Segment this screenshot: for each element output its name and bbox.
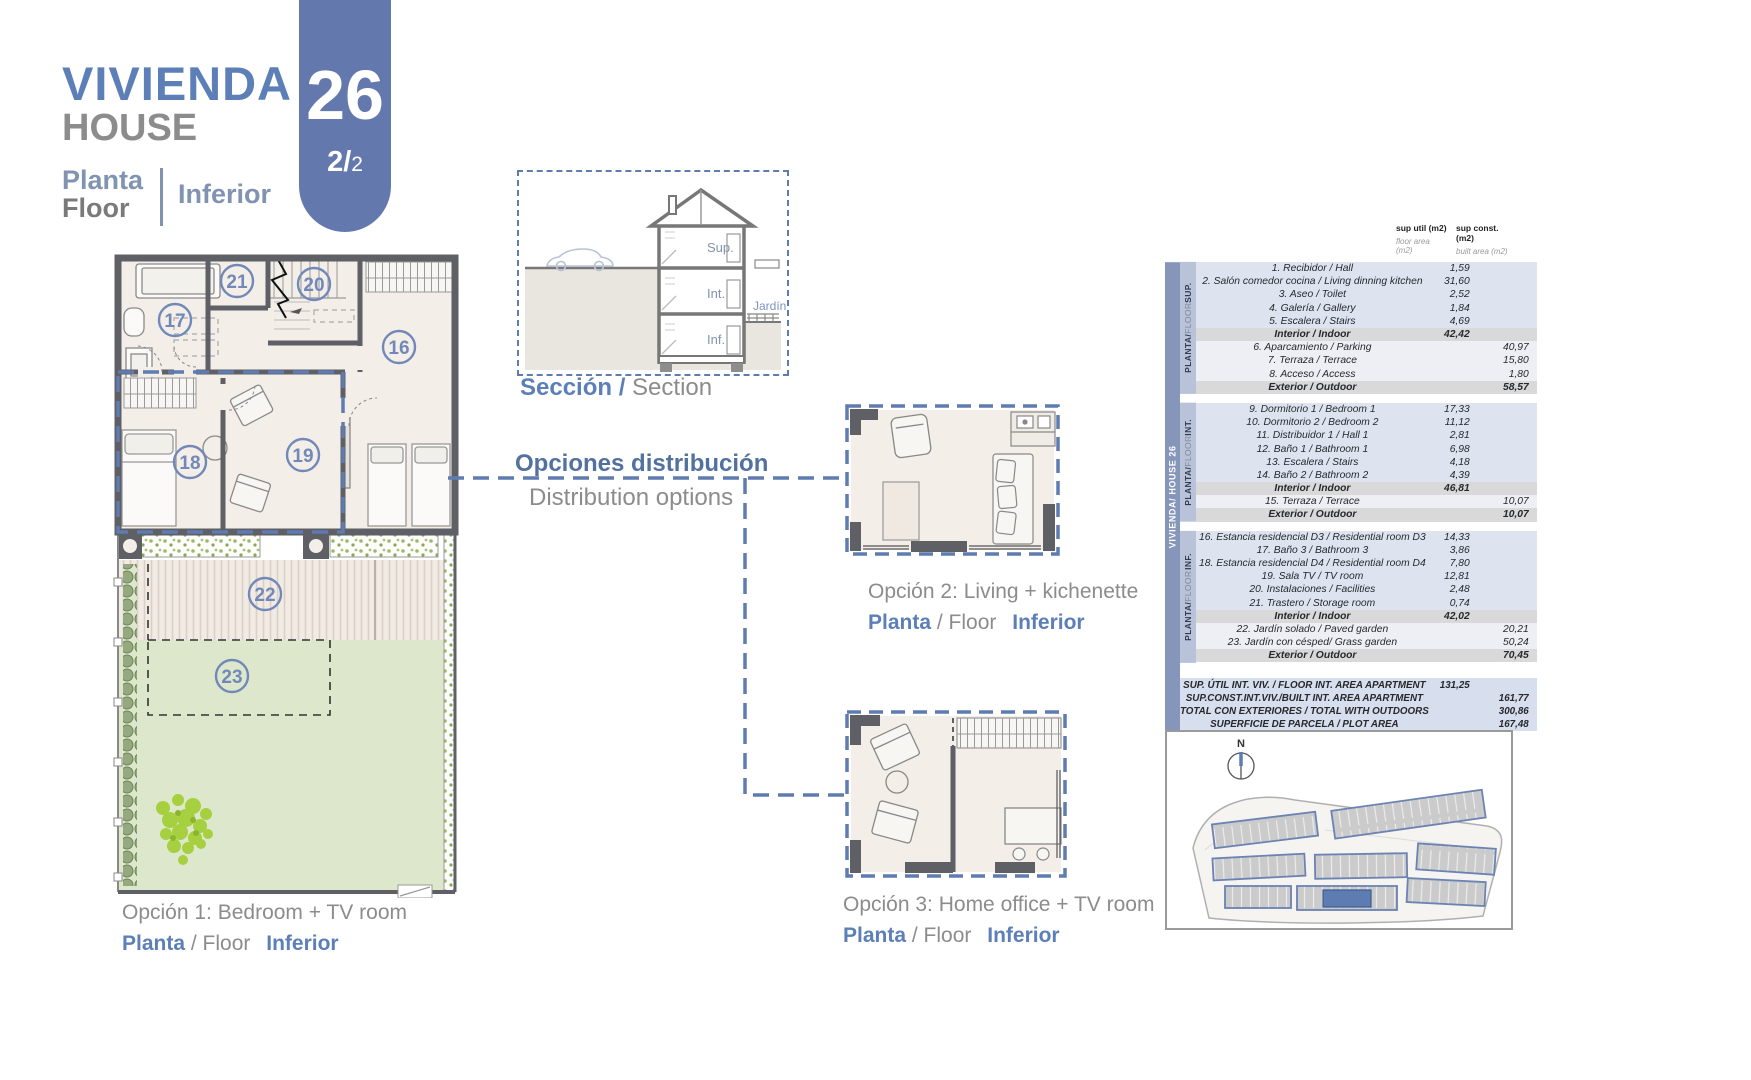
section-rows: 1. Recibidor / Hall1,592. Salón comedor …: [1196, 262, 1537, 394]
row-label: 15. Terraza / Terrace: [1196, 496, 1429, 507]
planter: [140, 535, 260, 557]
svg-text:17: 17: [164, 311, 185, 332]
row-label: 18. Estancia residencial D4 / Residentia…: [1196, 558, 1429, 569]
closet: [366, 262, 452, 292]
col-header-built-area: sup const. (m2) built area (m2): [1456, 224, 1514, 256]
table-row: 3. Aseo / Toilet2,52: [1196, 288, 1537, 301]
table-row: 14. Baño 2 / Bathroom 24,39: [1196, 469, 1537, 482]
row-label: 17. Baño 3 / Bathroom 3: [1196, 545, 1429, 556]
ground-left: [525, 268, 659, 370]
table-row: 13. Escalera / Stairs4,18: [1196, 456, 1537, 469]
row-floor-area: 42,02: [1429, 611, 1475, 622]
row-label: Interior / Indoor: [1196, 611, 1429, 622]
table-summary: SUP. ÚTIL INT. VIV. / FLOOR INT. AREA AP…: [1180, 678, 1537, 731]
table-section: PLANTA/FLOOR INF.16. Estancia residencia…: [1180, 531, 1537, 663]
row-floor-area: 31,60: [1429, 276, 1475, 287]
table-row: 15. Terraza / Terrace10,07: [1196, 495, 1537, 508]
col-header-floor-area: sup util (m2) floor area (m2): [1396, 224, 1448, 255]
planter: [330, 535, 438, 557]
closet: [124, 378, 196, 408]
row-floor-area: 4,39: [1429, 470, 1475, 481]
table-sections: PLANTA/FLOOR SUP.1. Recibidor / Hall1,59…: [1180, 262, 1537, 671]
row-built-area: 40,97: [1475, 342, 1537, 353]
table-row: 10. Dormitorio 2 / Bedroom 211,12: [1196, 416, 1537, 429]
table-row: 7. Terraza / Terrace15,80: [1196, 354, 1537, 367]
label-sup: Sup.: [707, 240, 734, 255]
label-inf: Inf.: [707, 332, 725, 347]
table-row: 23. Jardín con césped/ Grass garden50,24: [1196, 636, 1537, 649]
row-floor-area: 2,81: [1429, 430, 1475, 441]
section-rows: 9. Dormitorio 1 / Bedroom 117,3310. Dorm…: [1196, 403, 1537, 522]
row-floor-area: 131,25: [1429, 680, 1475, 691]
row-label: SUPERFICIE DE PARCELA / PLOT AREA: [1180, 719, 1429, 730]
bed: [122, 430, 176, 526]
section-caption: Sección / Section: [520, 374, 712, 402]
row-label: Interior / Indoor: [1196, 483, 1429, 494]
title-es: VIVIENDA: [62, 60, 292, 107]
kitchenette: [1011, 412, 1055, 446]
row-floor-area: 4,69: [1429, 316, 1475, 327]
table-row: 6. Aparcamiento / Parking40,97: [1196, 341, 1537, 354]
row-built-area: 161,77: [1475, 693, 1537, 704]
table-row: SUP. ÚTIL INT. VIV. / FLOOR INT. AREA AP…: [1180, 678, 1537, 691]
row-label: SUP.CONST.INT.VIV./BUILT INT. AREA APART…: [1180, 693, 1429, 704]
row-label: 2. Salón comedor cocina / Living dinning…: [1196, 276, 1429, 287]
area-table: VIVIENDA/ HOUSE 26 PLANTA/FLOOR SUP.1. R…: [1165, 262, 1513, 731]
row-label: 22. Jardín solado / Paved garden: [1196, 624, 1429, 635]
section-caption-en: Section: [632, 374, 712, 401]
option1-caption: Opción 1: Bedroom + TV room Planta / Flo…: [122, 901, 407, 956]
option2-caption: Opción 2: Living + kichenette Planta / F…: [868, 580, 1138, 635]
table-row: 11. Distribuidor 1 / Hall 12,81: [1196, 429, 1537, 442]
row-label: 11. Distribuidor 1 / Hall 1: [1196, 430, 1429, 441]
row-built-area: 20,21: [1475, 624, 1537, 635]
row-label: 7. Terraza / Terrace: [1196, 355, 1429, 366]
option2-label: Opción 2: Living + kichenette: [868, 580, 1138, 604]
table-row: 5. Escalera / Stairs4,69: [1196, 315, 1537, 328]
table-row: 2. Salón comedor cocina / Living dinning…: [1196, 275, 1537, 288]
option2-svg: [845, 404, 1060, 556]
table-row: Interior / Indoor42,02: [1196, 610, 1537, 623]
table-row: 1. Recibidor / Hall1,59: [1196, 262, 1537, 275]
sofa: [993, 454, 1033, 544]
table-row: 17. Baño 3 / Bathroom 33,86: [1196, 544, 1537, 557]
table-row: 9. Dormitorio 1 / Bedroom 117,33: [1196, 403, 1537, 416]
row-label: 5. Escalera / Stairs: [1196, 316, 1429, 327]
table-row: Interior / Indoor42,42: [1196, 328, 1537, 341]
floor-band-label: PLANTA/FLOOR SUP.: [1180, 262, 1196, 394]
section-rows: 16. Estancia residencial D3 / Residentia…: [1196, 531, 1537, 663]
divider: [160, 168, 163, 226]
row-label: 9. Dormitorio 1 / Bedroom 1: [1196, 404, 1429, 415]
row-built-area: 10,07: [1475, 509, 1537, 520]
row-label: 23. Jardín con césped/ Grass garden: [1196, 637, 1429, 648]
row-label: 16. Estancia residencial D3 / Residentia…: [1196, 532, 1429, 543]
svg-text:18: 18: [179, 453, 200, 474]
svg-text:23: 23: [221, 667, 242, 688]
unit-number: 26: [299, 60, 391, 130]
option-connectors: [440, 400, 870, 810]
row-floor-area: 2,52: [1429, 289, 1475, 300]
title-en: HOUSE: [62, 109, 292, 147]
option3-plan: [845, 710, 1067, 883]
row-floor-area: 11,12: [1429, 417, 1475, 428]
svg-text:21: 21: [226, 272, 248, 293]
row-floor-area: 12,81: [1429, 571, 1475, 582]
row-label: 8. Acceso / Access: [1196, 369, 1429, 380]
table-row: 16. Estancia residencial D3 / Residentia…: [1196, 531, 1537, 544]
option3-label: Opción 3: Home office + TV room: [843, 893, 1154, 917]
row-floor-area: 4,18: [1429, 457, 1475, 468]
floor-plan-svg: 17 21 20 16 18 19 22 23: [78, 248, 468, 898]
row-built-area: 167,48: [1475, 719, 1537, 730]
site-plan-svg: N: [1165, 730, 1513, 930]
row-floor-area: 14,33: [1429, 532, 1475, 543]
svg-text:22: 22: [254, 585, 275, 606]
row-floor-area: 3,86: [1429, 545, 1475, 556]
row-label: Exterior / Outdoor: [1196, 650, 1429, 661]
floor-selector: Planta Floor Inferior: [62, 166, 271, 226]
row-label: 12. Baño 1 / Bathroom 1: [1196, 444, 1429, 455]
plan-sheet: VIVIENDA HOUSE 26 2/2 Planta Floor Infer…: [0, 0, 1751, 1080]
table-row: 18. Estancia residencial D4 / Residentia…: [1196, 557, 1537, 570]
label-int: Int.: [707, 286, 725, 301]
svg-text:16: 16: [388, 338, 409, 359]
table-row: Interior / Indoor46,81: [1196, 482, 1537, 495]
row-floor-area: 17,33: [1429, 404, 1475, 415]
svg-text:19: 19: [292, 446, 313, 467]
row-label: Exterior / Outdoor: [1196, 382, 1429, 393]
row-floor-area: 46,81: [1429, 483, 1475, 494]
sheet-number: 2/2: [299, 146, 391, 179]
row-built-area: 15,80: [1475, 355, 1537, 366]
row-built-area: 70,45: [1475, 650, 1537, 661]
table-row: 19. Sala TV / TV room12,81: [1196, 570, 1537, 583]
grass-garden: [118, 640, 455, 892]
row-label: 3. Aseo / Toilet: [1196, 289, 1429, 300]
row-label: 21. Trastero / Storage room: [1196, 598, 1429, 609]
section-caption-es: Sección /: [520, 374, 625, 401]
section-svg: Sup. Int. Inf. Jardín: [519, 172, 787, 374]
row-floor-area: 6,98: [1429, 444, 1475, 455]
row-built-area: 58,57: [1475, 382, 1537, 393]
option3-svg: [845, 710, 1067, 878]
floor-name: Inferior: [178, 179, 271, 226]
table-row: Exterior / Outdoor10,07: [1196, 508, 1537, 521]
row-built-area: 50,24: [1475, 637, 1537, 648]
option2-floor: Planta / Floor Inferior: [868, 611, 1138, 635]
row-floor-area: 1,59: [1429, 263, 1475, 274]
floor-plan: 17 21 20 16 18 19 22 23: [78, 248, 468, 903]
row-label: Exterior / Outdoor: [1196, 509, 1429, 520]
table-row: 22. Jardín solado / Paved garden20,21: [1196, 623, 1537, 636]
highlighted-unit: [1323, 890, 1371, 907]
option1-label: Opción 1: Bedroom + TV room: [122, 901, 407, 925]
option3-floor: Planta / Floor Inferior: [843, 924, 1154, 948]
building-section: [651, 190, 753, 372]
table-row: 4. Galería / Gallery1,84: [1196, 302, 1537, 315]
svg-text:20: 20: [303, 275, 324, 296]
row-floor-area: 0,74: [1429, 598, 1475, 609]
table-row: Exterior / Outdoor58,57: [1196, 381, 1537, 394]
row-floor-area: 42,42: [1429, 329, 1475, 340]
rug: [883, 482, 919, 540]
paved-garden: [118, 560, 455, 640]
option3-caption: Opción 3: Home office + TV room Planta /…: [843, 893, 1154, 948]
north-label: N: [1237, 738, 1245, 750]
table-row: SUP.CONST.INT.VIV./BUILT INT. AREA APART…: [1180, 692, 1537, 705]
row-floor-area: 2,48: [1429, 584, 1475, 595]
table-row: TOTAL CON EXTERIORES / TOTAL WITH OUTDOO…: [1180, 705, 1537, 718]
armchair: [890, 414, 931, 459]
row-label: SUP. ÚTIL INT. VIV. / FLOOR INT. AREA AP…: [1180, 680, 1429, 691]
floor-word-en: Floor: [62, 194, 143, 222]
table-row: 20. Instalaciones / Facilities2,48: [1196, 583, 1537, 596]
document-title: VIVIENDA HOUSE: [62, 60, 292, 147]
row-floor-area: 1,84: [1429, 303, 1475, 314]
table-row: 8. Acceso / Access1,80: [1196, 368, 1537, 381]
house-band: VIVIENDA/ HOUSE 26: [1165, 262, 1180, 731]
section-drawing: Sup. Int. Inf. Jardín: [517, 170, 789, 376]
row-label: TOTAL CON EXTERIORES / TOTAL WITH OUTDOO…: [1180, 706, 1429, 717]
floor-word-es: Planta: [62, 166, 143, 194]
row-built-area: 300,86: [1475, 706, 1537, 717]
row-label: 20. Instalaciones / Facilities: [1196, 584, 1429, 595]
label-jardin: Jardín: [753, 299, 786, 313]
table-row: Exterior / Outdoor70,45: [1196, 649, 1537, 662]
table-section: PLANTA/FLOOR INT.9. Dormitorio 1 / Bedro…: [1180, 403, 1537, 522]
option1-floor: Planta / Floor Inferior: [122, 932, 407, 956]
row-floor-area: 7,80: [1429, 558, 1475, 569]
floor-band-label: PLANTA/FLOOR INT.: [1180, 403, 1196, 522]
row-label: 6. Aparcamiento / Parking: [1196, 342, 1429, 353]
row-label: 4. Galería / Gallery: [1196, 303, 1429, 314]
unit-badge: 26 2/2: [299, 0, 391, 232]
row-built-area: 10,07: [1475, 496, 1537, 507]
row-label: 14. Baño 2 / Bathroom 2: [1196, 470, 1429, 481]
table-row: 21. Trastero / Storage room0,74: [1196, 597, 1537, 610]
row-label: 10. Dormitorio 2 / Bedroom 2: [1196, 417, 1429, 428]
row-label: 13. Escalera / Stairs: [1196, 457, 1429, 468]
table-section: PLANTA/FLOOR SUP.1. Recibidor / Hall1,59…: [1180, 262, 1537, 394]
table-row: 12. Baño 1 / Bathroom 16,98: [1196, 442, 1537, 455]
row-label: Interior / Indoor: [1196, 329, 1429, 340]
site-plan: N: [1165, 730, 1513, 935]
hedge: [123, 564, 137, 886]
row-label: 1. Recibidor / Hall: [1196, 263, 1429, 274]
row-label: 19. Sala TV / TV room: [1196, 571, 1429, 582]
row-built-area: 1,80: [1475, 369, 1537, 380]
option2-plan: [845, 404, 1060, 561]
ground-right: [744, 322, 781, 370]
floor-band-label: PLANTA/FLOOR INF.: [1180, 531, 1196, 663]
